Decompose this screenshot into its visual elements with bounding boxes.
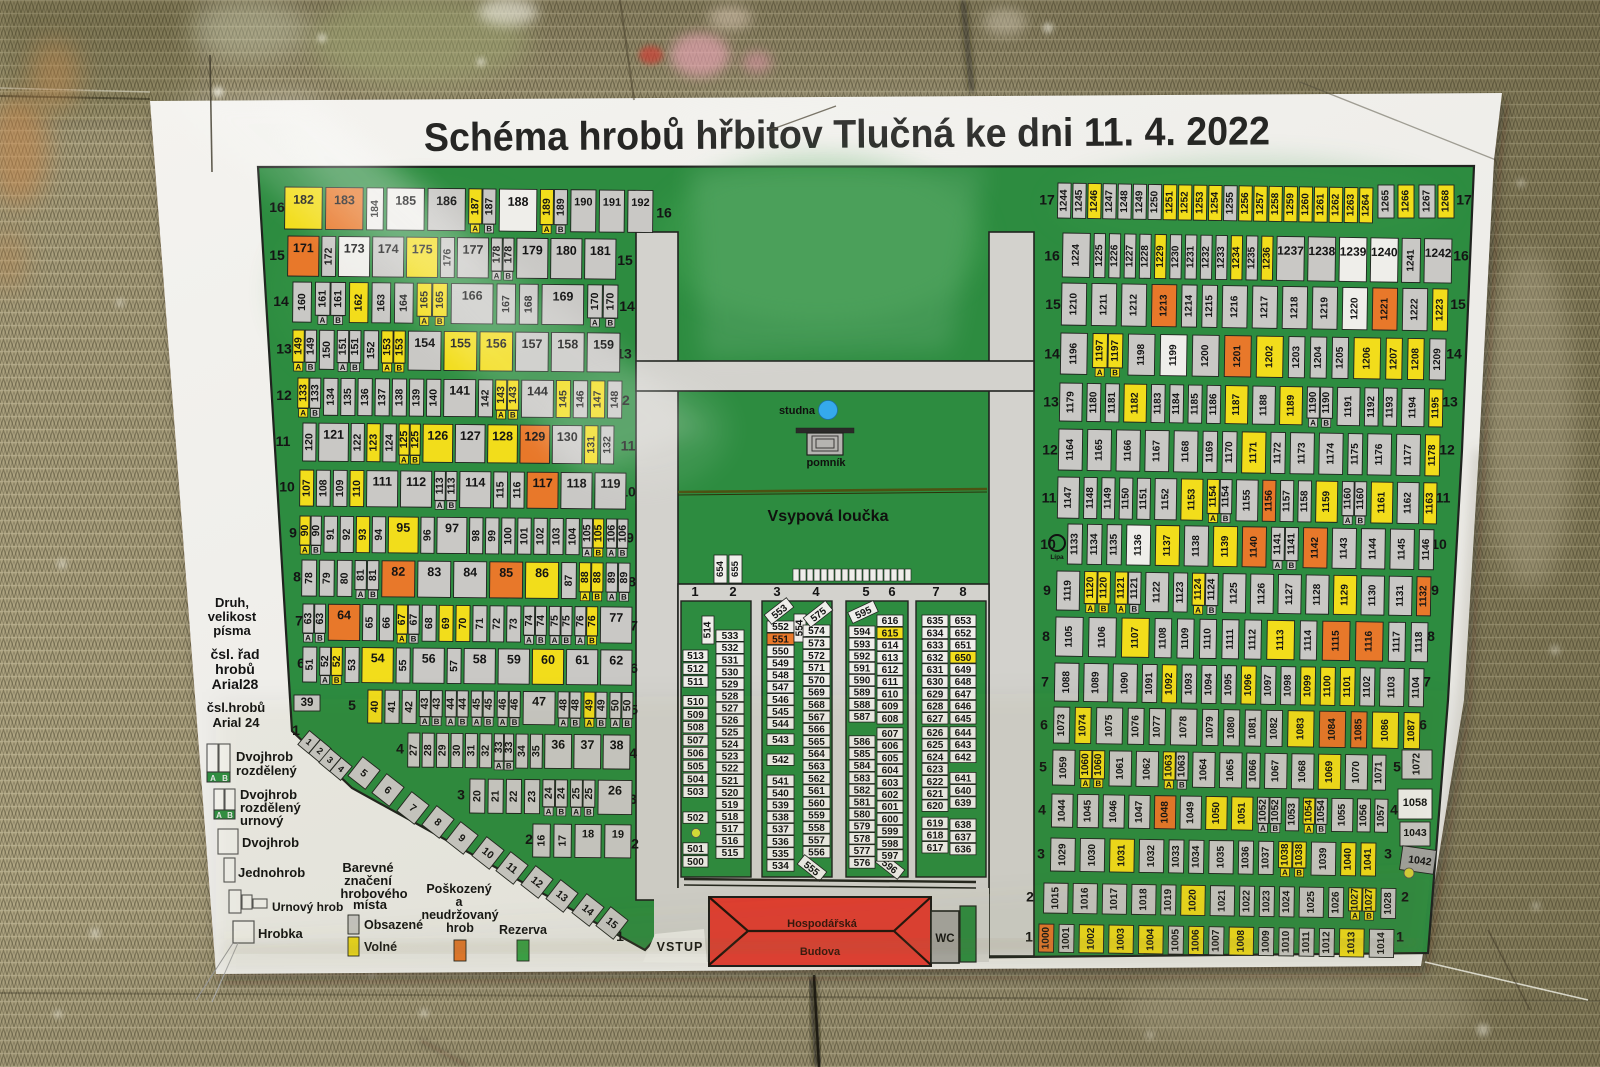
svg-text:1229: 1229 [1155, 245, 1166, 268]
svg-text:1111: 1111 [1225, 628, 1236, 649]
svg-text:149: 149 [305, 337, 317, 355]
svg-text:12: 12 [276, 387, 292, 403]
svg-text:82: 82 [391, 565, 405, 579]
svg-text:91: 91 [325, 528, 337, 540]
svg-text:A: A [582, 592, 588, 601]
svg-text:1238: 1238 [1308, 244, 1335, 258]
svg-text:1235: 1235 [1246, 246, 1257, 269]
svg-text:1176: 1176 [1374, 443, 1385, 465]
svg-text:95: 95 [396, 521, 410, 535]
svg-text:1182: 1182 [1130, 392, 1141, 414]
svg-text:1128: 1128 [1312, 583, 1323, 605]
svg-text:93: 93 [357, 529, 369, 541]
svg-text:B: B [1223, 514, 1229, 523]
svg-text:B: B [486, 224, 492, 233]
svg-text:1228: 1228 [1140, 245, 1151, 268]
svg-text:63: 63 [314, 613, 326, 625]
svg-text:B: B [1112, 368, 1118, 377]
svg-text:79: 79 [321, 572, 333, 584]
svg-text:1262: 1262 [1330, 193, 1341, 216]
svg-text:1: 1 [691, 584, 698, 599]
svg-text:1247: 1247 [1104, 190, 1115, 213]
svg-text:611: 611 [882, 677, 899, 688]
svg-text:1258: 1258 [1270, 192, 1281, 215]
svg-text:1205: 1205 [1335, 346, 1346, 369]
svg-text:A: A [592, 318, 598, 327]
svg-text:1151: 1151 [1138, 487, 1149, 509]
svg-text:128: 128 [492, 429, 513, 443]
svg-text:54: 54 [371, 651, 385, 665]
svg-text:1112: 1112 [1247, 629, 1258, 651]
svg-text:133: 133 [297, 384, 309, 402]
svg-text:1109: 1109 [1180, 627, 1191, 649]
svg-text:1198: 1198 [1136, 343, 1147, 365]
svg-text:109: 109 [334, 479, 346, 497]
svg-text:1224: 1224 [1071, 244, 1082, 267]
svg-text:81: 81 [355, 569, 367, 581]
svg-text:1154: 1154 [1220, 485, 1231, 507]
svg-text:B: B [448, 501, 454, 510]
svg-text:1126: 1126 [1256, 582, 1267, 604]
svg-text:548: 548 [772, 671, 789, 682]
svg-text:1107: 1107 [1130, 626, 1141, 648]
svg-text:písma: písma [213, 623, 251, 638]
svg-text:1185: 1185 [1190, 393, 1201, 415]
svg-text:152: 152 [365, 341, 377, 359]
svg-text:179: 179 [522, 243, 543, 257]
svg-text:1124: 1124 [1193, 578, 1204, 600]
svg-text:1267: 1267 [1422, 189, 1433, 212]
svg-text:56: 56 [422, 652, 436, 666]
svg-text:571: 571 [808, 663, 825, 674]
svg-text:124: 124 [384, 434, 396, 452]
svg-text:160: 160 [296, 293, 308, 311]
svg-text:10: 10 [279, 479, 295, 495]
svg-text:1140: 1140 [1249, 536, 1260, 558]
svg-text:1221: 1221 [1379, 297, 1390, 320]
svg-text:551: 551 [772, 634, 789, 645]
svg-text:1113: 1113 [1275, 629, 1286, 651]
svg-text:97: 97 [445, 521, 459, 535]
svg-text:122: 122 [352, 434, 364, 452]
svg-text:A: A [1087, 604, 1093, 613]
svg-text:170: 170 [589, 292, 601, 310]
svg-text:16: 16 [269, 199, 285, 215]
svg-text:67: 67 [408, 614, 420, 626]
svg-text:1159: 1159 [1321, 490, 1332, 512]
svg-text:1255: 1255 [1225, 192, 1236, 215]
svg-text:1089: 1089 [1090, 671, 1101, 694]
svg-text:649: 649 [955, 665, 972, 676]
svg-text:1173: 1173 [1296, 442, 1307, 464]
svg-text:94: 94 [373, 529, 385, 541]
svg-text:115: 115 [494, 481, 506, 498]
svg-text:1134: 1134 [1089, 533, 1100, 555]
svg-text:53: 53 [346, 659, 358, 671]
svg-text:1248: 1248 [1119, 190, 1130, 213]
svg-text:1174: 1174 [1325, 442, 1336, 464]
svg-text:1245: 1245 [1074, 189, 1085, 212]
svg-text:126: 126 [427, 429, 448, 443]
svg-text:1193: 1193 [1384, 396, 1395, 418]
svg-text:A: A [358, 590, 364, 599]
svg-text:512: 512 [687, 664, 704, 675]
svg-text:14: 14 [273, 293, 289, 309]
svg-text:190: 190 [574, 196, 592, 208]
svg-text:Arial28: Arial28 [212, 676, 259, 692]
svg-text:68: 68 [423, 617, 435, 629]
svg-text:B: B [1357, 516, 1363, 525]
svg-text:170: 170 [604, 293, 616, 311]
svg-text:A: A [384, 363, 390, 372]
svg-text:1250: 1250 [1149, 190, 1160, 213]
svg-text:1108: 1108 [1158, 627, 1169, 649]
svg-text:108: 108 [317, 479, 329, 497]
svg-text:1152: 1152 [1160, 488, 1171, 510]
svg-text:88: 88 [579, 571, 591, 583]
svg-text:B: B [370, 590, 376, 599]
svg-text:8: 8 [959, 584, 966, 599]
svg-text:67: 67 [396, 613, 408, 625]
svg-text:616: 616 [882, 616, 899, 627]
svg-text:1197: 1197 [1110, 339, 1121, 361]
svg-text:1195: 1195 [1430, 397, 1441, 419]
svg-text:1133: 1133 [1069, 533, 1080, 555]
svg-text:7: 7 [1423, 674, 1431, 690]
svg-text:1155: 1155 [1241, 489, 1252, 511]
svg-text:A: A [305, 634, 311, 643]
svg-text:1114: 1114 [1303, 629, 1314, 651]
svg-text:593: 593 [854, 639, 871, 650]
svg-text:121: 121 [323, 428, 344, 442]
svg-text:9: 9 [289, 525, 297, 541]
svg-text:532: 532 [722, 643, 739, 654]
svg-text:574: 574 [808, 626, 825, 637]
svg-text:55: 55 [397, 659, 409, 671]
svg-text:570: 570 [808, 675, 825, 686]
svg-text:63: 63 [302, 612, 314, 624]
svg-text:B: B [620, 549, 626, 558]
svg-text:547: 547 [772, 683, 789, 694]
svg-text:1190: 1190 [1321, 391, 1332, 413]
svg-text:B: B [313, 546, 319, 555]
svg-text:1090: 1090 [1119, 671, 1130, 694]
svg-text:11: 11 [1436, 489, 1451, 505]
svg-text:1092: 1092 [1164, 672, 1175, 695]
svg-text:153: 153 [393, 338, 405, 356]
svg-text:B: B [411, 635, 417, 644]
svg-text:1148: 1148 [1085, 487, 1096, 509]
svg-text:1127: 1127 [1284, 583, 1295, 605]
svg-text:A: A [498, 410, 504, 419]
svg-text:162: 162 [353, 294, 365, 312]
svg-text:B: B [1209, 606, 1215, 615]
svg-text:1166: 1166 [1122, 439, 1133, 461]
svg-text:137: 137 [376, 388, 388, 406]
svg-text:8: 8 [1427, 628, 1435, 644]
svg-text:192: 192 [631, 197, 649, 209]
svg-text:171: 171 [293, 241, 314, 255]
svg-text:4: 4 [812, 584, 820, 599]
svg-text:1154: 1154 [1208, 485, 1219, 507]
svg-text:1242: 1242 [1425, 246, 1452, 260]
svg-text:1124: 1124 [1206, 578, 1217, 600]
svg-text:52: 52 [331, 655, 343, 667]
svg-text:1260: 1260 [1300, 193, 1311, 216]
svg-text:1208: 1208 [1410, 347, 1421, 370]
svg-text:81: 81 [367, 569, 379, 581]
svg-text:1157: 1157 [1281, 490, 1292, 512]
svg-text:17: 17 [1039, 192, 1055, 208]
svg-text:65: 65 [364, 617, 376, 629]
svg-text:161: 161 [332, 290, 344, 308]
svg-text:1179: 1179 [1065, 391, 1076, 413]
svg-text:86: 86 [535, 566, 549, 580]
svg-text:A: A [1097, 368, 1103, 377]
svg-text:16: 16 [656, 204, 672, 220]
svg-text:Druh,: Druh, [215, 595, 249, 610]
svg-text:1226: 1226 [1109, 244, 1120, 267]
svg-text:89: 89 [618, 572, 630, 584]
svg-text:1132: 1132 [1418, 585, 1429, 607]
svg-text:A: A [437, 501, 443, 510]
svg-text:B: B [352, 363, 358, 372]
svg-text:511: 511 [687, 677, 704, 688]
svg-text:1191: 1191 [1343, 395, 1354, 417]
svg-text:631: 631 [927, 665, 944, 676]
svg-text:106: 106 [617, 525, 629, 543]
svg-text:1160: 1160 [1355, 487, 1366, 509]
svg-text:187: 187 [483, 197, 495, 215]
svg-text:1153: 1153 [1186, 488, 1197, 510]
svg-text:125: 125 [409, 431, 421, 449]
svg-text:102: 102 [534, 527, 546, 545]
svg-text:552: 552 [772, 622, 789, 633]
svg-text:1156: 1156 [1263, 489, 1274, 511]
svg-text:1135: 1135 [1109, 533, 1120, 555]
svg-text:92: 92 [341, 528, 353, 540]
svg-text:9: 9 [1431, 582, 1439, 598]
svg-text:1149: 1149 [1103, 487, 1114, 509]
svg-text:1253: 1253 [1194, 191, 1205, 214]
svg-text:1175: 1175 [1350, 443, 1361, 465]
svg-text:592: 592 [854, 651, 871, 662]
svg-text:188: 188 [508, 195, 529, 209]
svg-text:6: 6 [888, 584, 895, 599]
svg-text:64: 64 [337, 608, 351, 622]
svg-text:61: 61 [575, 653, 589, 667]
svg-text:114: 114 [465, 475, 485, 489]
svg-text:630: 630 [927, 677, 944, 688]
svg-text:1172: 1172 [1272, 442, 1283, 464]
svg-text:1164: 1164 [1065, 438, 1076, 460]
svg-text:1123: 1123 [1175, 581, 1186, 603]
svg-text:A: A [300, 409, 306, 418]
svg-text:1254: 1254 [1210, 191, 1221, 214]
svg-text:59: 59 [507, 652, 521, 666]
svg-text:655: 655 [730, 560, 741, 577]
svg-text:1216: 1216 [1229, 295, 1240, 318]
svg-text:A: A [526, 636, 532, 645]
svg-text:pomník: pomník [806, 457, 846, 469]
svg-text:16: 16 [1044, 247, 1060, 263]
svg-text:1106: 1106 [1097, 626, 1108, 648]
svg-text:Lípa: Lípa [1050, 554, 1064, 561]
svg-text:1143: 1143 [1339, 537, 1350, 559]
svg-text:1161: 1161 [1376, 491, 1387, 513]
svg-text:135: 135 [342, 388, 354, 406]
svg-text:1146: 1146 [1421, 538, 1432, 560]
svg-text:1170: 1170 [1224, 441, 1235, 463]
svg-text:651: 651 [955, 641, 972, 652]
svg-text:A: A [552, 636, 558, 645]
svg-text:15: 15 [1450, 296, 1466, 312]
svg-text:550: 550 [772, 646, 789, 657]
svg-text:69: 69 [440, 617, 452, 629]
svg-text:650: 650 [955, 653, 972, 664]
svg-text:66: 66 [381, 617, 393, 629]
svg-text:1252: 1252 [1179, 191, 1190, 214]
svg-text:B: B [510, 411, 516, 420]
svg-text:1163: 1163 [1424, 492, 1435, 514]
svg-text:velikost: velikost [208, 609, 257, 624]
svg-text:čsl. řad: čsl. řad [210, 646, 259, 662]
svg-text:1141: 1141 [1286, 533, 1297, 555]
svg-text:1119: 1119 [1062, 580, 1073, 602]
svg-text:12: 12 [1439, 441, 1455, 457]
svg-text:2: 2 [729, 584, 736, 599]
svg-text:105: 105 [592, 524, 604, 542]
svg-text:A: A [340, 363, 346, 372]
svg-text:5: 5 [862, 584, 869, 599]
svg-text:A: A [1345, 516, 1351, 525]
svg-text:B: B [589, 636, 595, 645]
svg-text:72: 72 [491, 618, 503, 630]
svg-text:1136: 1136 [1133, 534, 1144, 556]
svg-text:studna: studna [779, 405, 816, 417]
svg-text:1162: 1162 [1402, 492, 1413, 514]
svg-text:1222: 1222 [1409, 298, 1420, 321]
svg-text:60: 60 [541, 653, 555, 667]
svg-text:A: A [1118, 604, 1124, 613]
svg-text:1204: 1204 [1313, 346, 1324, 369]
svg-text:70: 70 [457, 617, 469, 629]
svg-text:B: B [558, 225, 564, 234]
svg-text:572: 572 [808, 651, 825, 662]
svg-text:13: 13 [1043, 394, 1059, 410]
svg-text:1212: 1212 [1128, 293, 1139, 316]
svg-text:1225: 1225 [1094, 244, 1105, 267]
svg-text:531: 531 [722, 655, 739, 666]
svg-text:1234: 1234 [1231, 246, 1242, 269]
svg-text:76: 76 [586, 615, 598, 627]
svg-text:A: A [295, 363, 301, 372]
svg-text:B: B [1289, 561, 1295, 570]
svg-text:1167: 1167 [1151, 440, 1162, 462]
svg-text:113: 113 [445, 477, 457, 494]
svg-text:1160: 1160 [1342, 487, 1353, 509]
svg-text:634: 634 [927, 628, 944, 639]
svg-text:52: 52 [319, 655, 331, 667]
svg-text:1121: 1121 [1116, 577, 1127, 599]
svg-text:1177: 1177 [1403, 444, 1414, 466]
svg-text:1105: 1105 [1064, 625, 1075, 647]
svg-text:96: 96 [421, 529, 433, 541]
svg-text:1138: 1138 [1191, 535, 1202, 557]
svg-text:1180: 1180 [1088, 391, 1099, 413]
svg-text:103: 103 [550, 527, 562, 545]
svg-text:139: 139 [410, 389, 422, 407]
svg-text:133: 133 [309, 384, 321, 402]
svg-text:A: A [320, 316, 326, 325]
svg-text:591: 591 [854, 664, 871, 675]
svg-text:1256: 1256 [1240, 192, 1251, 215]
svg-text:100: 100 [502, 527, 514, 545]
svg-text:B: B [317, 634, 323, 643]
svg-text:98: 98 [470, 530, 482, 542]
svg-text:189: 189 [555, 198, 567, 216]
svg-text:654: 654 [715, 560, 726, 577]
svg-text:11: 11 [276, 433, 291, 449]
svg-text:74: 74 [523, 615, 535, 627]
svg-text:1200: 1200 [1200, 344, 1211, 367]
svg-text:1120: 1120 [1085, 576, 1096, 598]
svg-text:136: 136 [359, 388, 371, 406]
svg-text:8: 8 [293, 569, 301, 585]
svg-text:1121: 1121 [1129, 577, 1140, 599]
svg-text:1168: 1168 [1180, 440, 1191, 462]
svg-text:151: 151 [337, 338, 349, 356]
svg-text:632: 632 [927, 653, 944, 664]
svg-text:1120: 1120 [1098, 576, 1109, 598]
svg-text:513: 513 [687, 651, 704, 662]
svg-text:3: 3 [773, 584, 780, 599]
svg-text:138: 138 [393, 389, 405, 407]
svg-text:1237: 1237 [1277, 243, 1304, 257]
svg-text:17: 17 [1456, 192, 1472, 208]
svg-text:1192: 1192 [1366, 396, 1377, 418]
svg-text:7: 7 [1041, 674, 1049, 690]
svg-text:74: 74 [535, 615, 547, 627]
svg-text:1169: 1169 [1204, 441, 1215, 463]
svg-text:1144: 1144 [1367, 537, 1378, 559]
svg-text:120: 120 [303, 433, 315, 451]
svg-text:530: 530 [722, 667, 739, 678]
svg-text:85: 85 [499, 566, 513, 580]
svg-text:154: 154 [414, 336, 435, 350]
svg-text:1178: 1178 [1427, 444, 1438, 466]
svg-text:73: 73 [508, 618, 520, 630]
svg-text:107: 107 [301, 479, 313, 497]
svg-text:15: 15 [269, 247, 285, 263]
svg-text:B: B [607, 319, 613, 328]
svg-text:Vsypová loučka: Vsypová loučka [768, 508, 889, 525]
svg-text:187: 187 [469, 197, 481, 215]
svg-text:612: 612 [882, 665, 899, 676]
svg-text:A: A [322, 676, 328, 685]
svg-text:1184: 1184 [1171, 392, 1182, 414]
svg-text:B: B [1101, 604, 1107, 613]
svg-text:1244: 1244 [1059, 189, 1070, 212]
svg-text:A: A [401, 455, 407, 464]
svg-text:1230: 1230 [1170, 245, 1181, 268]
svg-text:71: 71 [474, 618, 486, 630]
svg-text:1158: 1158 [1299, 490, 1310, 512]
svg-text:1183: 1183 [1152, 392, 1163, 414]
svg-text:58: 58 [473, 652, 487, 666]
svg-text:1210: 1210 [1068, 293, 1079, 316]
svg-text:B: B [594, 592, 600, 601]
